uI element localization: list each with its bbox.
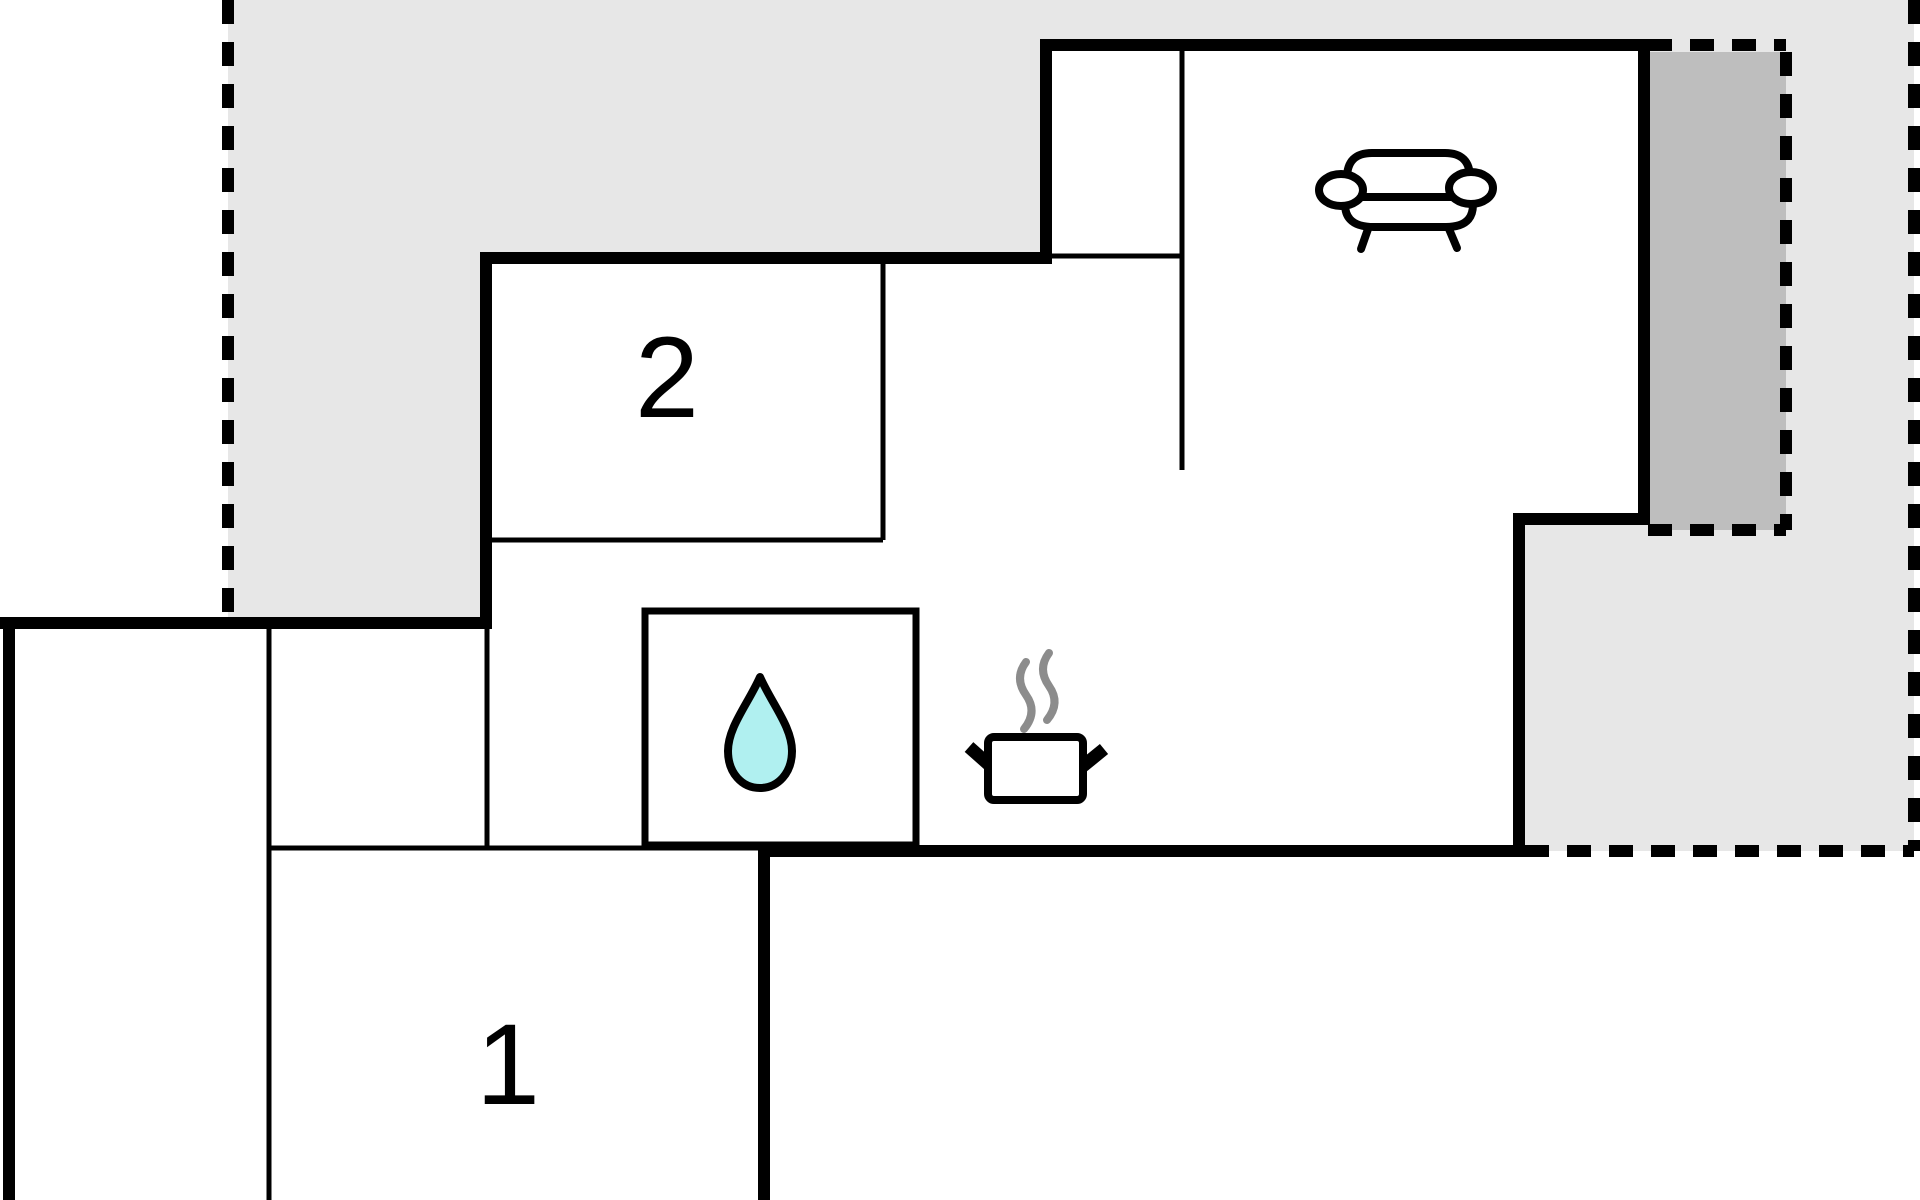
pot-body [988, 737, 1083, 800]
sofa-leg-right [1449, 229, 1457, 248]
balcony-area [1650, 52, 1786, 530]
terrace-left [228, 0, 480, 618]
room-2-label: 2 [635, 314, 699, 442]
terrace-top [480, 0, 1046, 253]
terrace-top-strip [1046, 0, 1650, 39]
steam-icon [1020, 653, 1055, 729]
floor-plan-page: 2 1 [0, 0, 1920, 1200]
sofa-armrest-left [1319, 174, 1363, 206]
sofa-armrest-right [1449, 172, 1493, 204]
floor-plan: 2 1 [0, 0, 1920, 1200]
terrace-right-of-wall [1525, 519, 1650, 851]
terrace-right-column [1786, 0, 1914, 851]
terrace-below-balcony [1650, 530, 1786, 851]
cooking-pot-icon [969, 653, 1104, 800]
sofa-leg-left [1361, 229, 1368, 249]
steam-line-right [1043, 653, 1055, 720]
sofa-icon [1319, 153, 1493, 249]
room-1-label: 1 [476, 1001, 540, 1129]
steam-line-left [1020, 662, 1032, 729]
